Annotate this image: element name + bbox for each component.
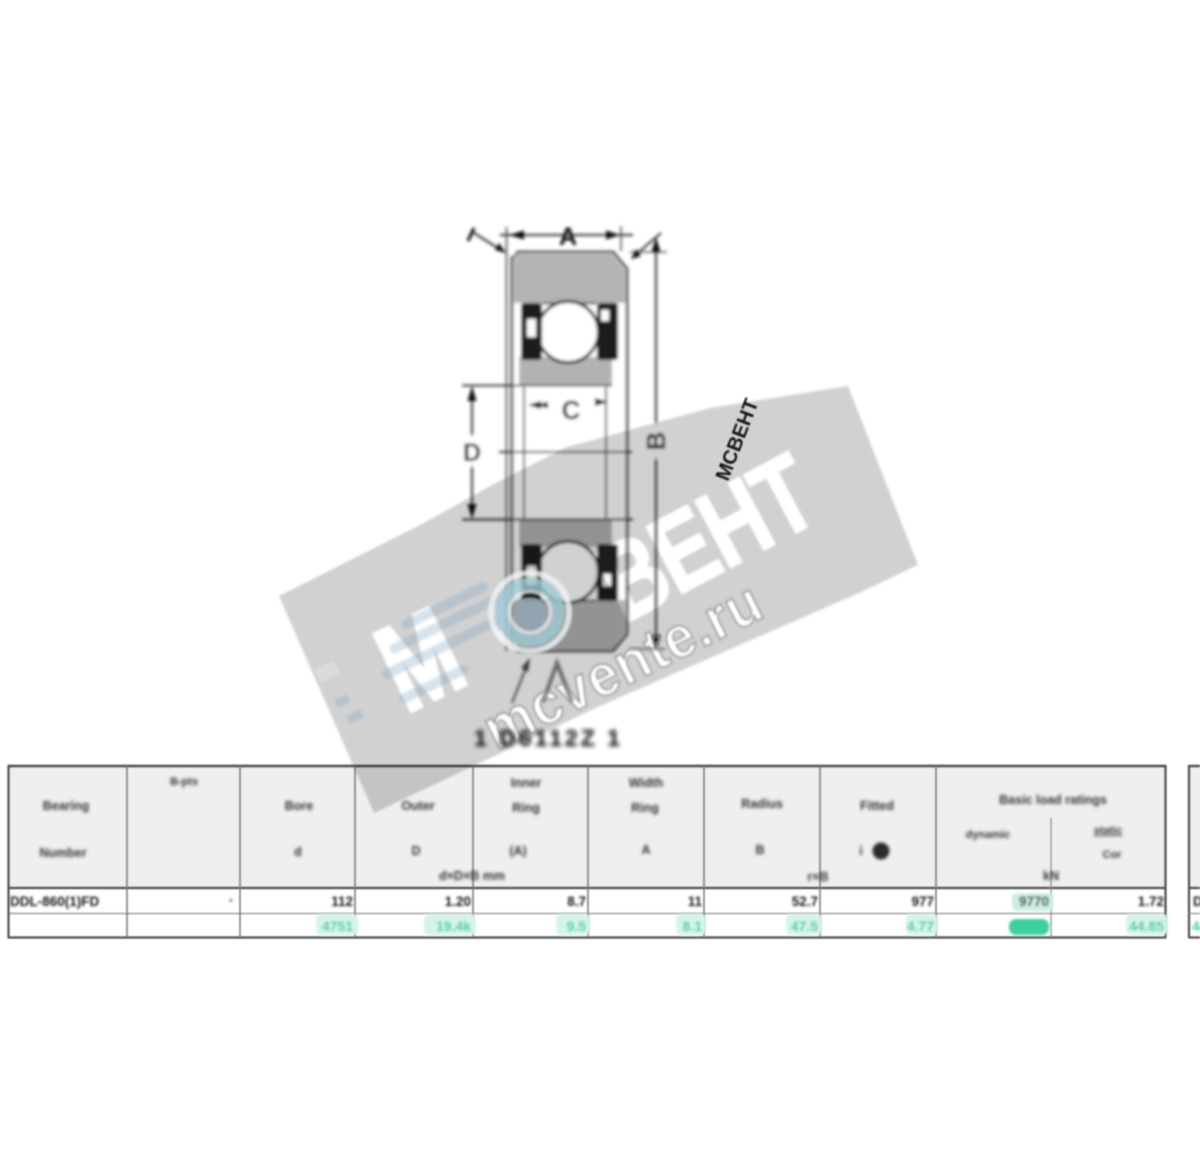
svg-text:C: C <box>562 395 581 425</box>
svg-text:static: static <box>1094 825 1123 837</box>
svg-text:1.20: 1.20 <box>445 894 471 909</box>
svg-text:11: 11 <box>688 894 703 909</box>
svg-text:977: 977 <box>911 894 934 909</box>
svg-text:1 D6112Z 1: 1 D6112Z 1 <box>474 725 623 751</box>
svg-text:8.1: 8.1 <box>683 918 703 934</box>
svg-text:D: D <box>411 844 420 858</box>
svg-text:·: · <box>229 893 234 908</box>
svg-text:1.72: 1.72 <box>1138 894 1164 909</box>
svg-text:19.4k: 19.4k <box>436 918 471 934</box>
svg-text:52.7: 52.7 <box>792 894 818 909</box>
svg-text:44: 44 <box>1192 919 1200 934</box>
svg-text:4751: 4751 <box>322 918 353 934</box>
svg-text:A: A <box>641 843 650 857</box>
svg-text:Cor: Cor <box>1103 849 1123 861</box>
svg-text:dynamic: dynamic <box>966 829 1011 841</box>
svg-text:44.85: 44.85 <box>1129 918 1164 934</box>
svg-text:9.5: 9.5 <box>567 918 587 934</box>
svg-text:4.77: 4.77 <box>907 918 934 934</box>
svg-text:d×D×B mm: d×D×B mm <box>439 869 505 883</box>
svg-text:Ring: Ring <box>512 801 540 815</box>
svg-text:Width: Width <box>629 776 664 790</box>
svg-text:Number: Number <box>39 846 86 860</box>
svg-text:A: A <box>559 223 577 251</box>
svg-text:Basic load ratings: Basic load ratings <box>999 793 1107 807</box>
svg-text:Fitted: Fitted <box>860 799 894 813</box>
svg-text:Outer: Outer <box>401 799 434 813</box>
svg-text:B-pts: B-pts <box>170 776 198 788</box>
svg-text:D: D <box>463 439 481 467</box>
svg-text:Di: Di <box>1193 894 1200 909</box>
svg-text:47.5: 47.5 <box>791 918 818 934</box>
svg-text:(A): (A) <box>509 844 526 858</box>
svg-text:B: B <box>755 843 764 857</box>
svg-text:DDL-860(1)FD: DDL-860(1)FD <box>10 894 100 909</box>
svg-text:9770: 9770 <box>1019 894 1049 909</box>
svg-text:i: i <box>859 844 862 858</box>
svg-text:112: 112 <box>331 894 353 909</box>
svg-text:Ring: Ring <box>631 801 659 815</box>
svg-text:r×B: r×B <box>807 870 828 884</box>
svg-text:Inner: Inner <box>511 776 542 790</box>
svg-text:8.7: 8.7 <box>567 894 586 909</box>
svg-text:d: d <box>294 845 302 859</box>
svg-text:Bearing: Bearing <box>43 799 90 813</box>
svg-text:Bore: Bore <box>285 799 314 813</box>
svg-text:Radius: Radius <box>741 797 783 811</box>
svg-text:kN: kN <box>1043 869 1059 883</box>
